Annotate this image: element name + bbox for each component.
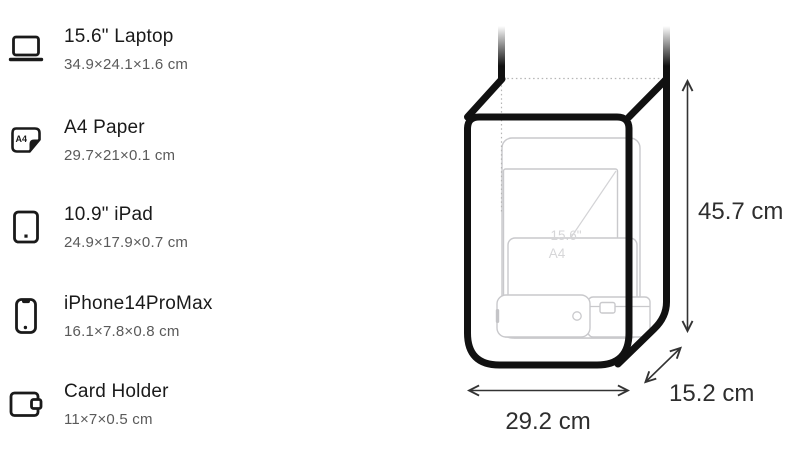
ipad-icon (2, 210, 50, 244)
list-item-a4-paper: A4 A4 Paper 29.7×21×0.1 cm (2, 112, 175, 168)
bag-top-left-connector (468, 79, 503, 117)
a4-watermark: A4 (549, 246, 566, 261)
list-item-laptop: 15.6" Laptop 34.9×24.1×1.6 cm (2, 21, 188, 77)
iphone-icon (2, 297, 50, 335)
list-item-card-holder: Card Holder 11×7×0.5 cm (2, 376, 169, 432)
item-title: 15.6" Laptop (64, 26, 188, 48)
iphone-outline (496, 295, 590, 337)
bag-diagram: 15.6" A4 45.7 cm 29.2 cm 15.2 cm (420, 0, 800, 455)
item-dims: 24.9×17.9×0.7 cm (64, 235, 188, 251)
depth-arrow (646, 348, 681, 382)
a4-icon-label: A4 (16, 134, 28, 144)
width-label: 29.2 cm (505, 408, 590, 435)
strap-left (498, 26, 505, 80)
item-title: A4 Paper (64, 117, 175, 139)
card-holder-outline (588, 297, 650, 337)
card-holder-icon (2, 389, 50, 419)
strap-right (663, 26, 670, 80)
item-title: 10.9" iPad (64, 204, 188, 226)
item-dims: 11×7×0.5 cm (64, 412, 169, 428)
item-dims: 29.7×21×0.1 cm (64, 148, 175, 164)
bag-top-right-connector (629, 79, 667, 117)
laptop-icon (2, 34, 50, 64)
item-dims: 16.1×7.8×0.8 cm (64, 324, 213, 340)
height-label: 45.7 cm (698, 198, 783, 225)
list-item-iphone: iPhone14ProMax 16.1×7.8×0.8 cm (2, 288, 213, 344)
item-title: Card Holder (64, 381, 169, 403)
list-item-ipad: 10.9" iPad 24.9×17.9×0.7 cm (2, 199, 188, 255)
item-dims: 34.9×24.1×1.6 cm (64, 57, 188, 73)
a4-paper-icon: A4 (2, 125, 50, 155)
laptop-watermark: 15.6" (550, 228, 581, 243)
depth-label: 15.2 cm (669, 380, 754, 407)
item-title: iPhone14ProMax (64, 293, 213, 315)
